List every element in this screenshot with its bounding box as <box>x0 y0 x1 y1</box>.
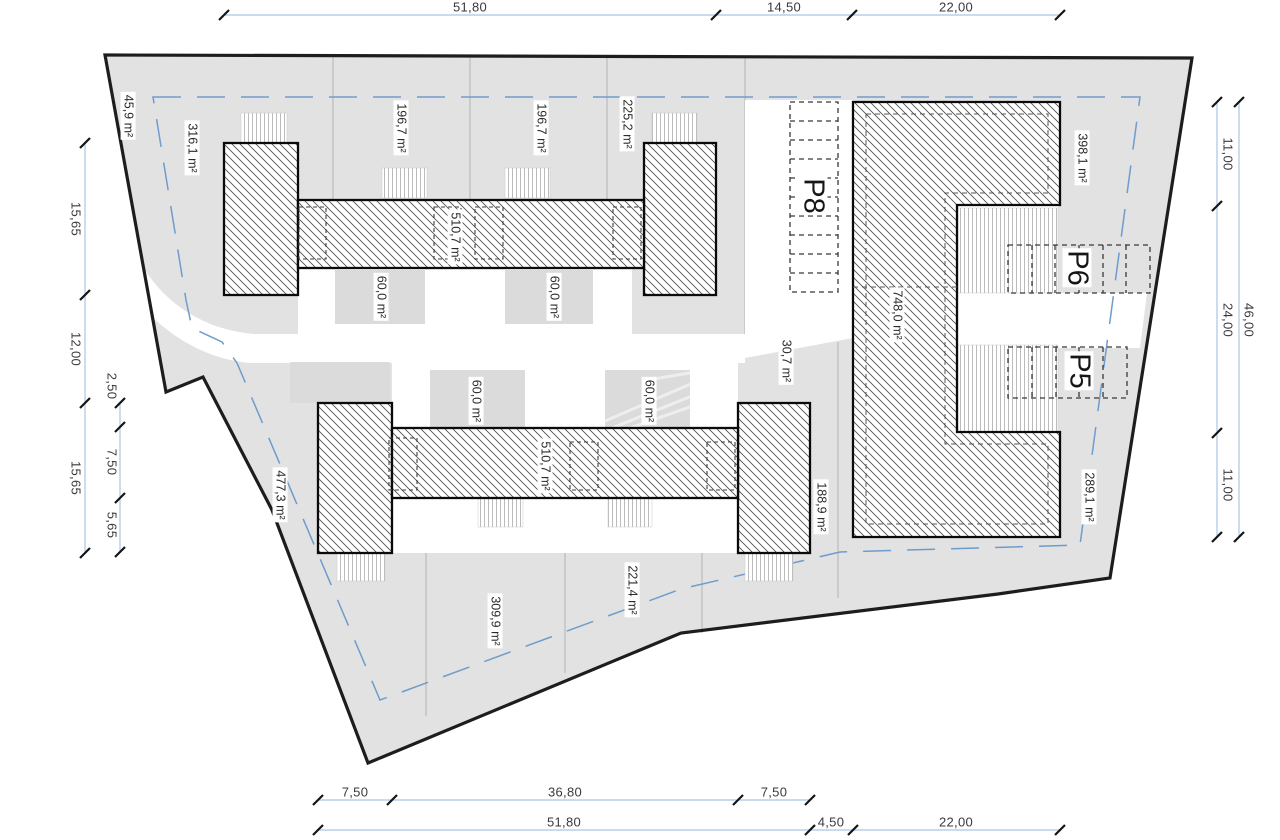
site-plan-canvas: 45,9 m²316,1 m²196,7 m²196,7 m²225,2 m²3… <box>0 0 1280 840</box>
site-plan-drawing <box>0 0 1280 840</box>
